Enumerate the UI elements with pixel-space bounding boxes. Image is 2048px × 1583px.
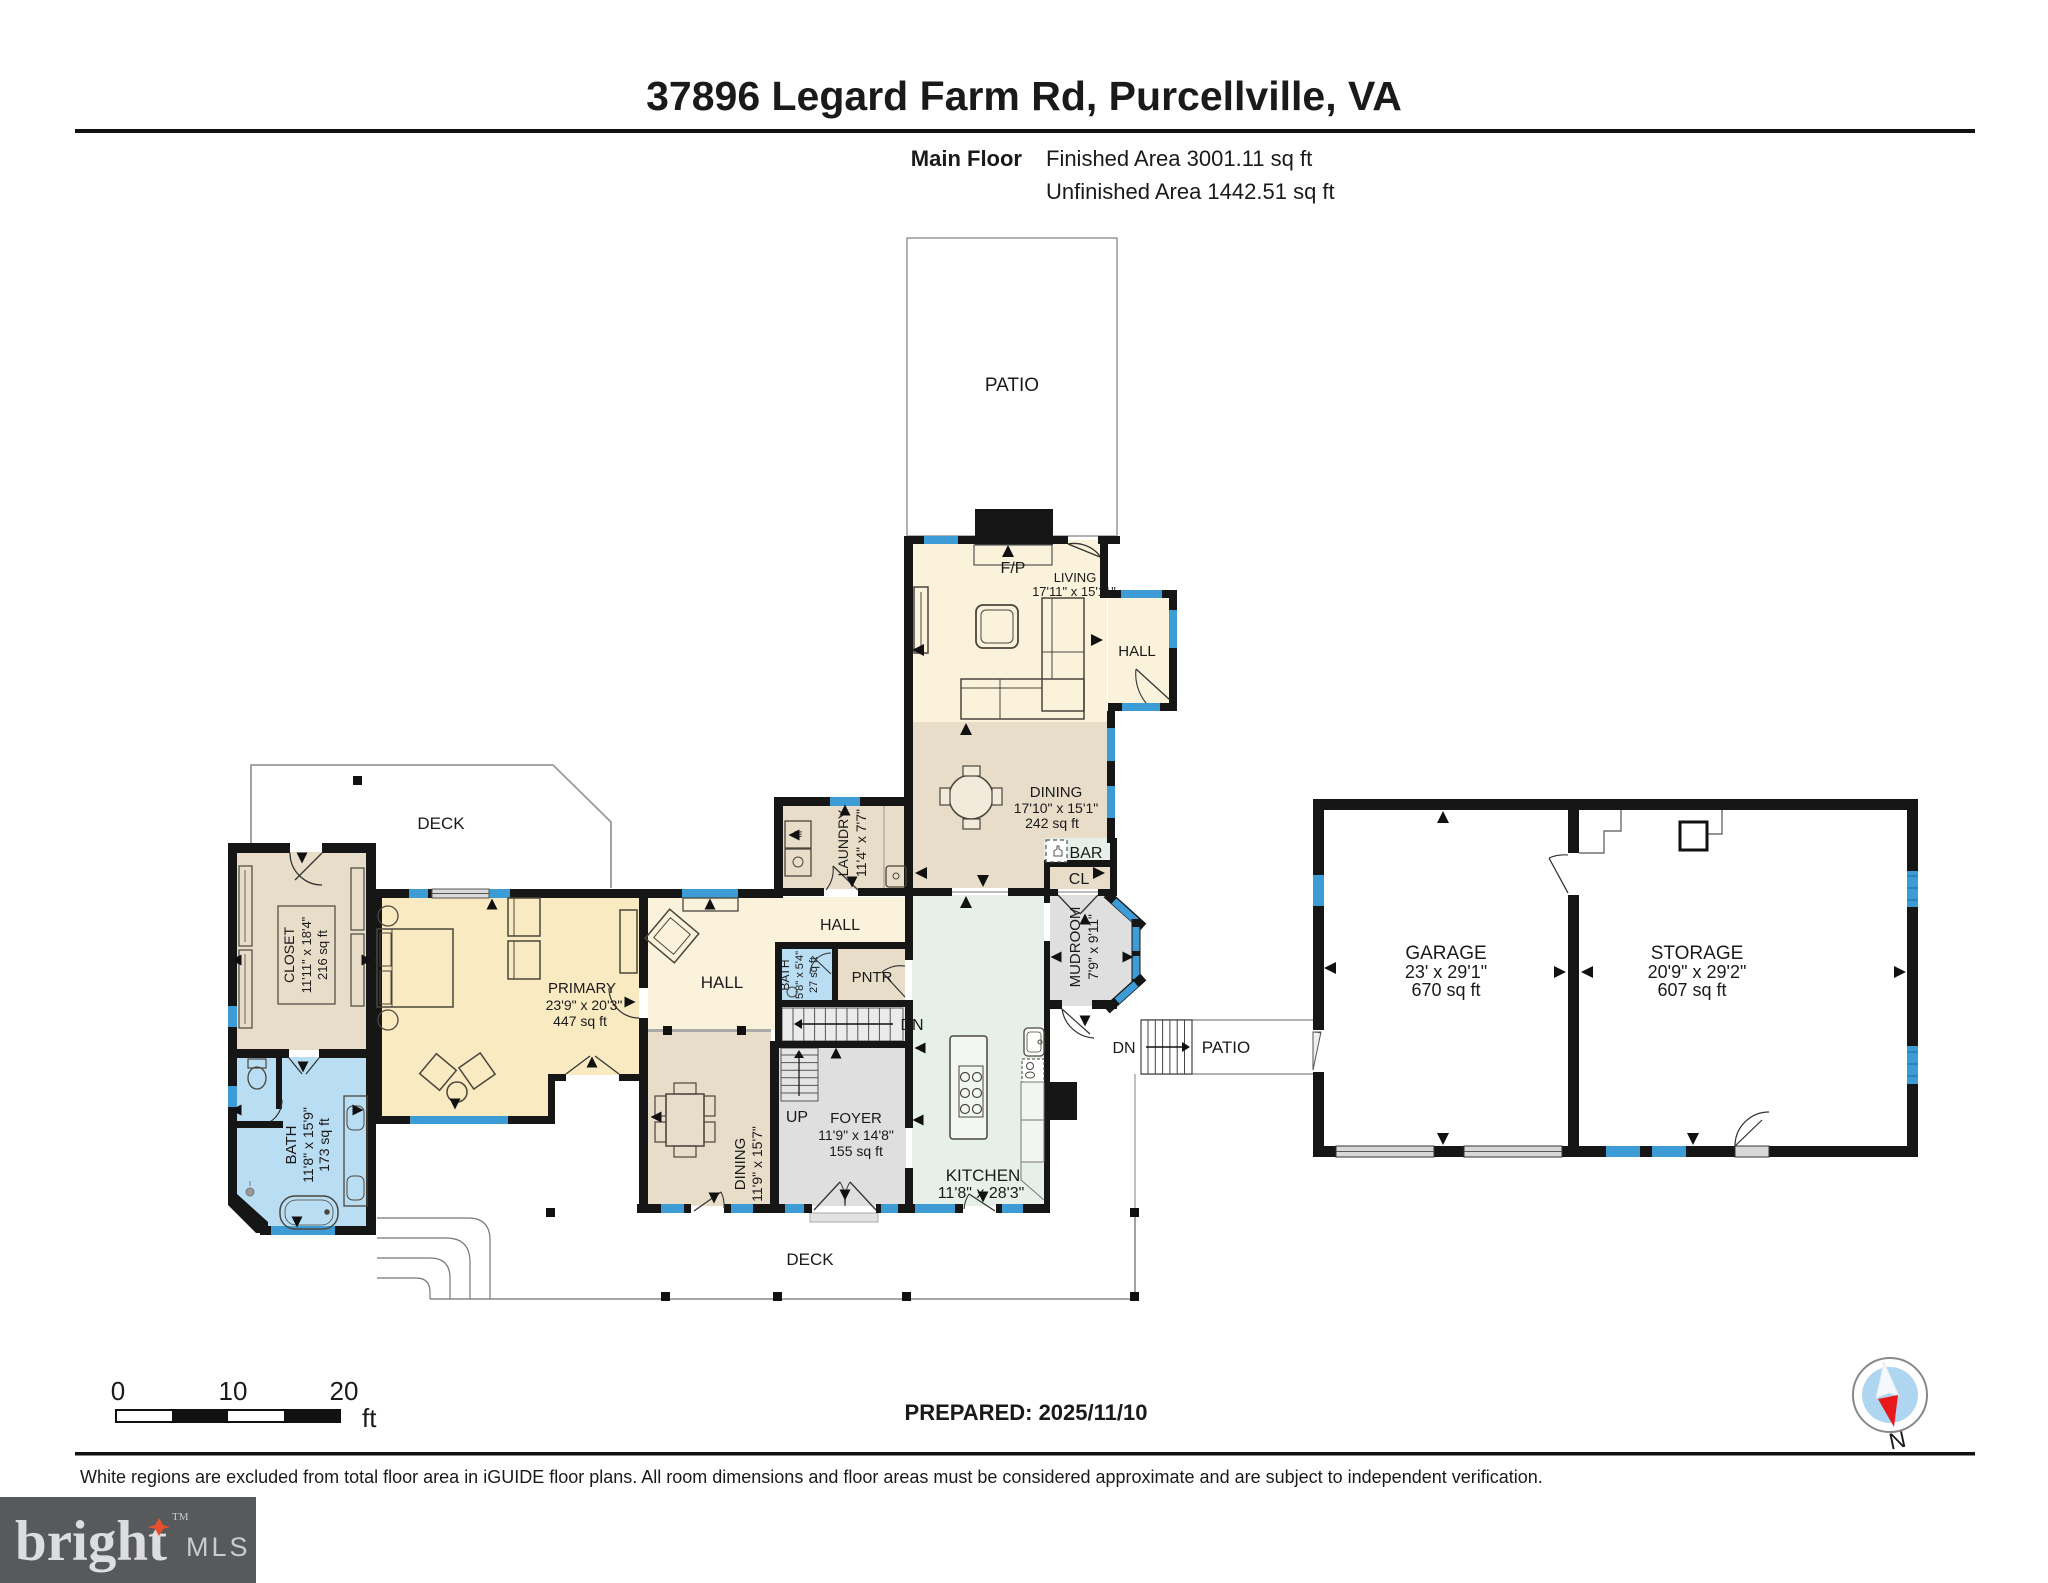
svg-text:17'10" x 15'1": 17'10" x 15'1"	[1014, 800, 1099, 816]
svg-text:447 sq ft: 447 sq ft	[553, 1013, 607, 1029]
svg-text:DECK: DECK	[786, 1250, 834, 1269]
svg-text:HALL: HALL	[701, 973, 744, 992]
svg-text:216 sq ft: 216 sq ft	[315, 930, 330, 980]
svg-text:11'8" x 15'9": 11'8" x 15'9"	[300, 1107, 316, 1183]
svg-text:Main Floor: Main Floor	[911, 146, 1023, 171]
svg-text:CL: CL	[1069, 871, 1090, 888]
svg-text:White regions are excluded fro: White regions are excluded from total fl…	[80, 1467, 1543, 1487]
svg-text:BATH: BATH	[283, 1126, 300, 1165]
svg-text:PRIMARY: PRIMARY	[548, 980, 616, 997]
svg-text:242 sq ft: 242 sq ft	[1025, 815, 1079, 831]
svg-text:23' x 29'1": 23' x 29'1"	[1405, 962, 1487, 982]
svg-text:PATIO: PATIO	[1202, 1038, 1251, 1057]
svg-text:CLOSET: CLOSET	[281, 927, 297, 983]
svg-text:HALL: HALL	[1118, 643, 1156, 660]
svg-text:670 sq ft: 670 sq ft	[1411, 980, 1480, 1000]
svg-text:11'4" x 7'7": 11'4" x 7'7"	[853, 809, 869, 877]
svg-text:bright: bright	[15, 1510, 167, 1573]
svg-text:155 sq ft: 155 sq ft	[829, 1143, 883, 1159]
svg-text:UP: UP	[786, 1109, 808, 1126]
svg-text:F/P: F/P	[1001, 560, 1026, 577]
svg-text:173 sq ft: 173 sq ft	[316, 1118, 332, 1172]
svg-text:TM: TM	[172, 1511, 189, 1523]
svg-text:DN: DN	[1112, 1040, 1135, 1057]
svg-text:0: 0	[111, 1376, 125, 1406]
svg-text:ft: ft	[362, 1403, 377, 1433]
svg-text:5'8" x 5'4": 5'8" x 5'4"	[794, 951, 806, 999]
svg-text:KITCHEN: KITCHEN	[946, 1166, 1021, 1185]
svg-text:DINING: DINING	[1030, 784, 1083, 801]
svg-text:LAUNDRY: LAUNDRY	[835, 809, 851, 876]
svg-text:STORAGE: STORAGE	[1651, 943, 1744, 964]
svg-text:DINING: DINING	[732, 1138, 749, 1191]
svg-text:DECK: DECK	[417, 814, 465, 833]
svg-text:GARAGE: GARAGE	[1405, 943, 1486, 964]
svg-text:Finished Area 3001.11 sq ft: Finished Area 3001.11 sq ft	[1046, 146, 1312, 171]
svg-text:20'9" x 29'2": 20'9" x 29'2"	[1648, 962, 1747, 982]
svg-text:11'9" x 15'7": 11'9" x 15'7"	[749, 1126, 765, 1202]
svg-text:PREPARED: 2025/11/10: PREPARED: 2025/11/10	[905, 1400, 1148, 1425]
svg-text:20: 20	[330, 1376, 359, 1406]
svg-text:MLS: MLS	[186, 1532, 251, 1562]
svg-text:17'11" x 15'11": 17'11" x 15'11"	[1032, 584, 1116, 599]
svg-text:FOYER: FOYER	[830, 1110, 882, 1127]
svg-text:LIVING: LIVING	[1054, 570, 1097, 585]
svg-text:Unfinished Area 1442.51 sq ft: Unfinished Area 1442.51 sq ft	[1046, 179, 1335, 204]
svg-text:HALL: HALL	[820, 917, 860, 934]
svg-text:PATIO: PATIO	[985, 375, 1039, 396]
svg-text:BAR: BAR	[1070, 845, 1103, 862]
svg-text:PNTR: PNTR	[852, 969, 893, 986]
svg-text:23'9" x 20'3": 23'9" x 20'3"	[546, 997, 623, 1013]
svg-text:10: 10	[219, 1376, 248, 1406]
svg-text:37896 Legard Farm Rd, Purcellv: 37896 Legard Farm Rd, Purcellville, VA	[646, 73, 1402, 119]
svg-text:11'11" x 18'4": 11'11" x 18'4"	[299, 916, 314, 993]
svg-text:607 sq ft: 607 sq ft	[1657, 980, 1726, 1000]
svg-text:11'9" x 14'8": 11'9" x 14'8"	[818, 1127, 894, 1143]
svg-text:MUDROOM: MUDROOM	[1067, 907, 1084, 988]
svg-text:BATH: BATH	[778, 959, 792, 990]
